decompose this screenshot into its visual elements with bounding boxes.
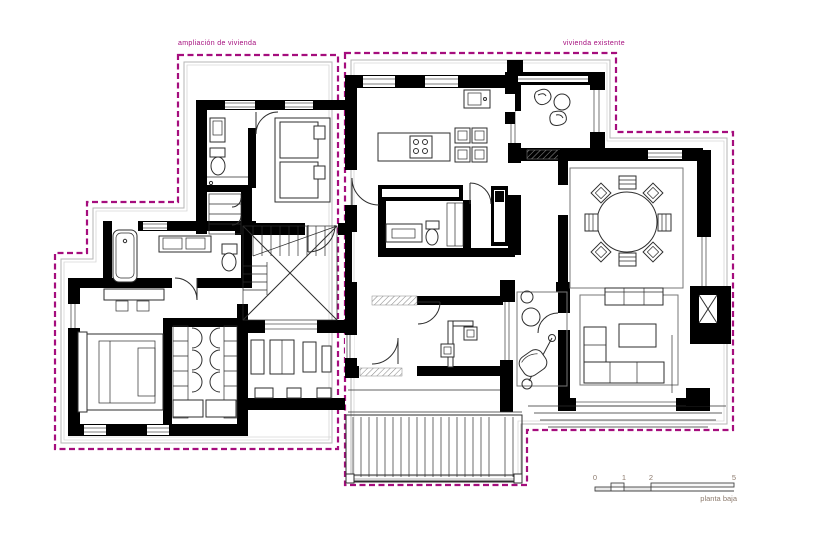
floor-plan-drawing: ampliación de vivienda vivienda existent… <box>0 0 817 554</box>
floor-plan-page: ampliación de vivienda vivienda existent… <box>0 0 817 554</box>
entry-cabinets <box>251 340 331 374</box>
scale-tick-5: 5 <box>732 473 736 482</box>
scale-tick-0: 0 <box>593 473 597 482</box>
dining-set <box>570 168 683 288</box>
site-outline <box>61 60 727 479</box>
sitting-nook <box>535 89 571 125</box>
walkin-closet <box>173 326 237 418</box>
bathroom-topleft-fixtures <box>207 112 278 185</box>
fireplace <box>690 286 731 344</box>
label-planta-baja: planta baja <box>700 494 738 503</box>
master-bedroom-furniture <box>78 289 164 412</box>
office-desk <box>418 302 477 367</box>
scale-bar: 0 1 2 5 <box>593 473 736 491</box>
interior-bathroom <box>378 183 508 246</box>
staircase <box>243 226 337 320</box>
scale-tick-2: 2 <box>649 473 653 482</box>
living-room-furniture <box>580 288 678 393</box>
scale-tick-1: 1 <box>622 473 626 482</box>
label-ampliacion: ampliación de vivienda <box>178 40 257 47</box>
deck <box>346 390 522 483</box>
label-existente: vivienda existente <box>563 40 625 47</box>
